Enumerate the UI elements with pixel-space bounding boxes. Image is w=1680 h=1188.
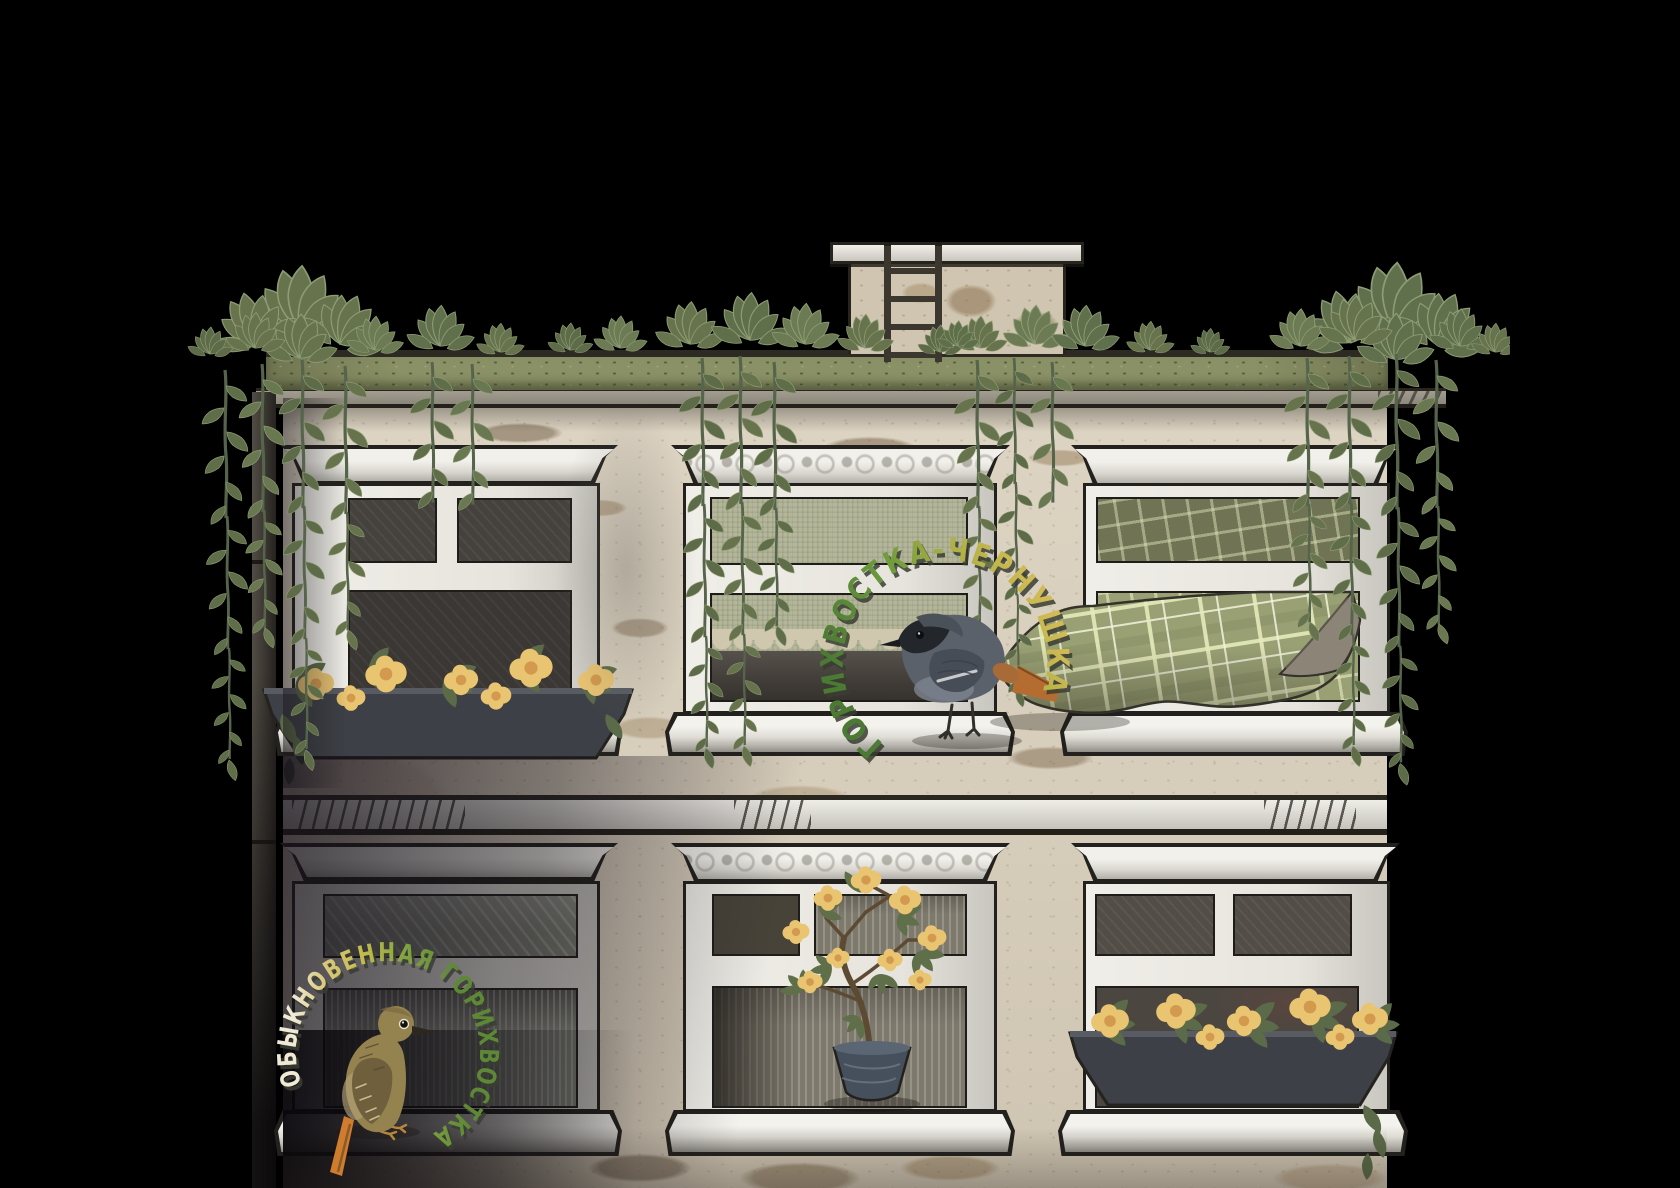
window-sill-face xyxy=(669,716,1011,752)
roof-parapet-ledge xyxy=(266,350,1388,390)
window-upper-middle xyxy=(665,445,1015,756)
rooftop-access-structure xyxy=(848,260,1066,354)
window-sill-face xyxy=(669,1114,1011,1152)
window-pane-blanket xyxy=(1096,591,1360,702)
window-pane xyxy=(457,498,572,563)
window-cornice xyxy=(1071,843,1400,883)
window-cornice xyxy=(1071,445,1400,487)
ladder-rail xyxy=(884,242,891,362)
window-sill xyxy=(665,1110,1015,1156)
window-cornice-face xyxy=(284,449,614,481)
window-sill xyxy=(274,1110,622,1156)
window-cornice xyxy=(671,843,1010,883)
window-sill-face xyxy=(278,716,618,752)
window-pane-plaid xyxy=(1096,497,1360,563)
window-pane xyxy=(1095,894,1215,956)
window-cornice-face xyxy=(1075,847,1396,879)
window-sill-face xyxy=(1064,716,1404,752)
rooftop-structure-cornice xyxy=(830,242,1084,264)
window-pane-curtain xyxy=(712,986,967,1108)
ladder xyxy=(884,246,942,362)
window-sill xyxy=(665,712,1015,756)
window-pane xyxy=(1233,894,1352,956)
ladder-rail xyxy=(935,242,942,362)
window-lower-left xyxy=(274,843,622,1158)
window-sill xyxy=(274,712,622,756)
window-sill-face xyxy=(1062,1114,1404,1152)
window-pane-mesh-curtain xyxy=(710,497,968,565)
window-interior xyxy=(712,651,966,700)
window-upper-right xyxy=(1060,445,1408,756)
window-upper-left xyxy=(274,445,622,756)
window-pane xyxy=(348,498,437,563)
window-cornice-face xyxy=(284,847,614,877)
belt-hatching xyxy=(1264,800,1356,829)
window-cornice-ornament xyxy=(675,449,1006,483)
belt-hatching xyxy=(292,800,465,829)
window-cornice-face xyxy=(1075,449,1396,483)
window-pane-blinds xyxy=(323,988,578,1108)
window-pane-curtain xyxy=(814,894,967,956)
window-sill xyxy=(1058,1110,1408,1156)
window-pane xyxy=(712,894,800,956)
belt-hatching xyxy=(734,800,811,829)
drainpipe xyxy=(252,392,276,1188)
window-cornice xyxy=(280,843,618,881)
window-lower-middle xyxy=(665,843,1015,1158)
window-sill-face xyxy=(278,1114,618,1152)
window-cornice xyxy=(280,445,618,485)
window-cornice-ornament xyxy=(675,847,1006,879)
window-lower-right xyxy=(1058,843,1408,1158)
window-cornice xyxy=(671,445,1010,487)
roof-slab-hatching xyxy=(1378,391,1444,404)
window-pane xyxy=(710,593,968,702)
roof-cornice-slab xyxy=(256,388,1446,408)
window-sill xyxy=(1060,712,1408,756)
window-pane xyxy=(1095,986,1359,1108)
window-pane xyxy=(323,894,578,958)
belt-course xyxy=(283,795,1387,835)
building-illustration: ГОРИХВОСТКА-ЧЕРНУШКА ОБЫКНОВЕННАЯ ГОРИХВ… xyxy=(0,0,1680,1188)
lace-curtain-trim xyxy=(712,629,966,651)
window-pane xyxy=(348,590,572,702)
